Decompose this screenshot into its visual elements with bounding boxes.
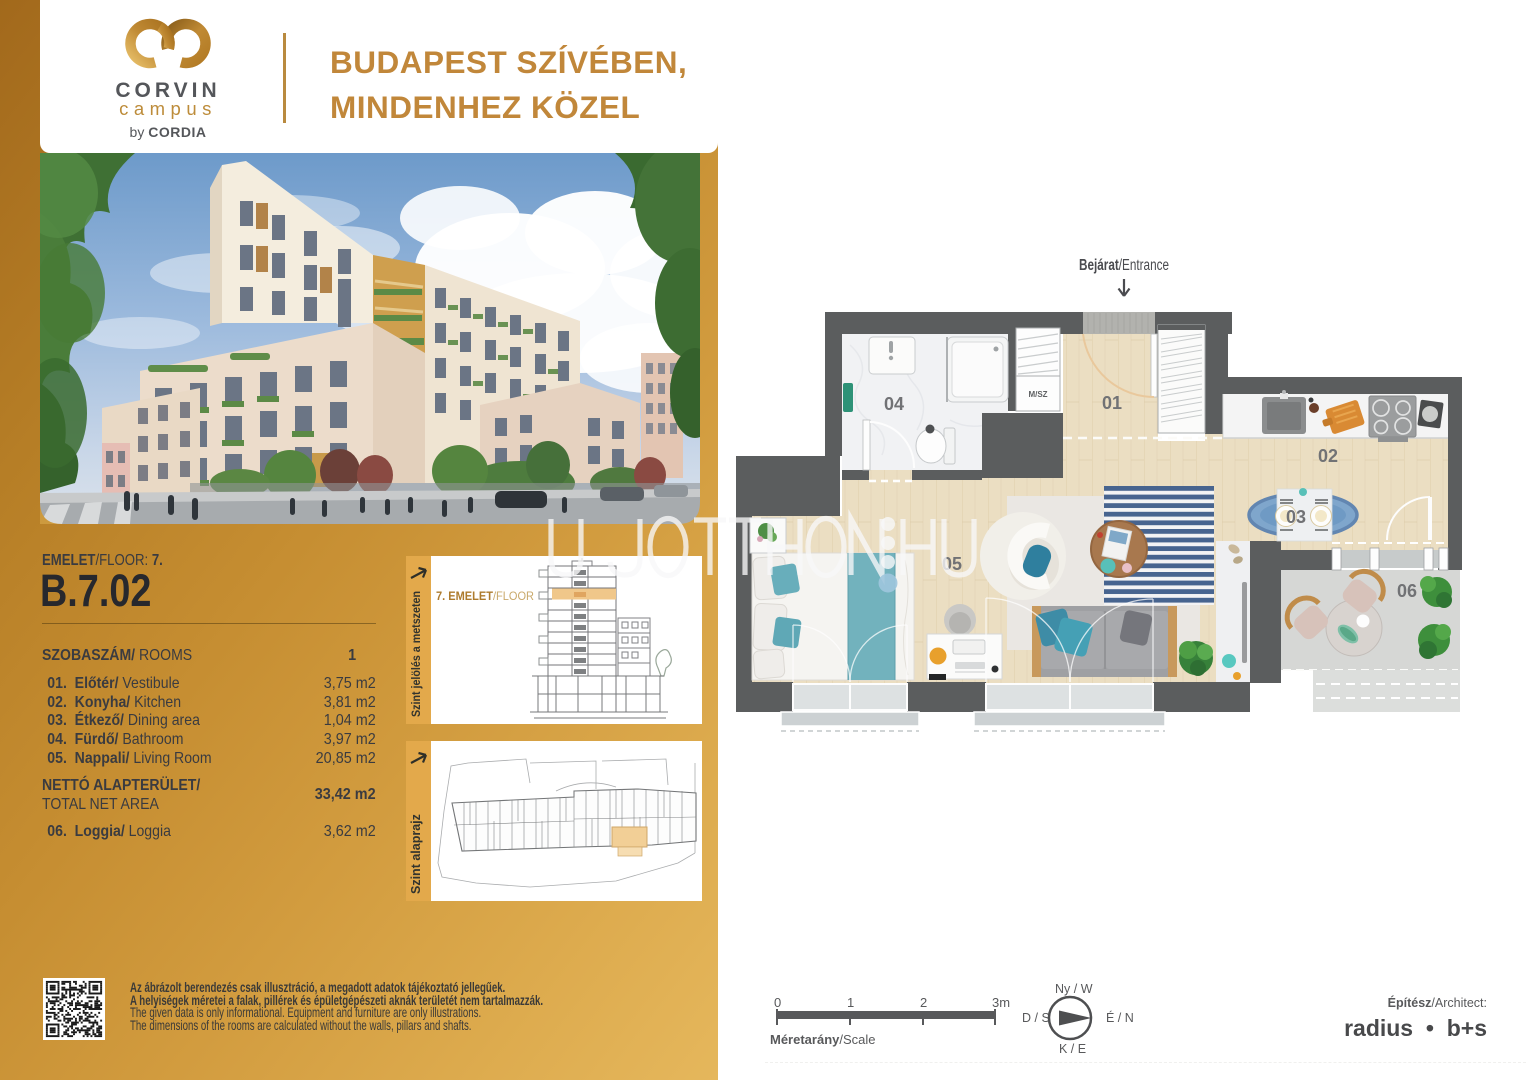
svg-text:Szint jelölés a metszeten: Szint jelölés a metszeten (411, 591, 423, 717)
svg-text:Bejárat/Entrance: Bejárat/Entrance (1079, 257, 1169, 274)
svg-text:01: 01 (1102, 393, 1122, 413)
svg-text:by CΟRDIA: by CΟRDIA (130, 124, 207, 140)
svg-text:06: 06 (1397, 581, 1417, 601)
svg-text:03: 03 (1286, 507, 1306, 527)
svg-text:Szint alaprajz: Szint alaprajz (409, 814, 423, 894)
svg-text:campus: campus (119, 98, 217, 119)
svg-text:02: 02 (1318, 446, 1338, 466)
svg-text:M/SZ: M/SZ (1028, 390, 1047, 399)
svg-text:04: 04 (884, 394, 904, 414)
svg-text:7. EMELET/FLOOR: 7. EMELET/FLOOR (436, 589, 534, 603)
